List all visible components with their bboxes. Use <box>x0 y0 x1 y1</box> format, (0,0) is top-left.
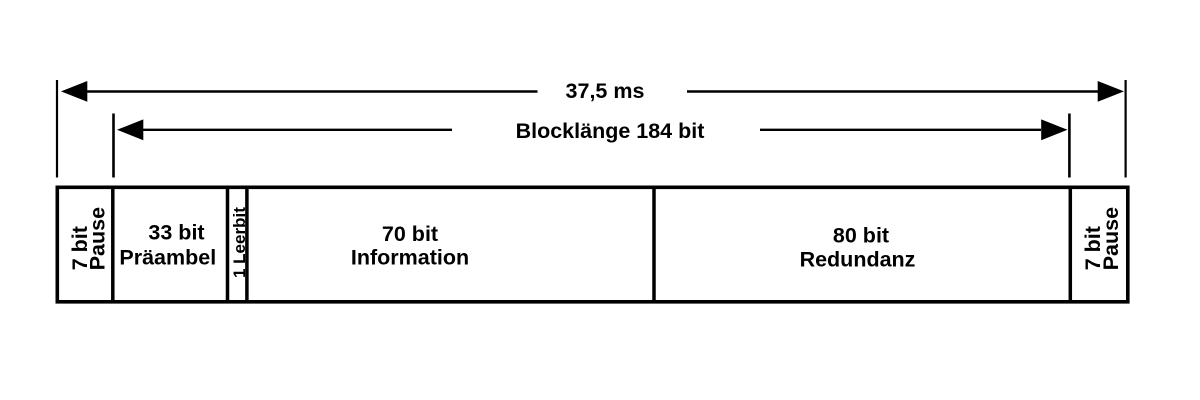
svg-text:80 bit: 80 bit <box>833 224 889 248</box>
svg-text:Pause: Pause <box>86 207 110 270</box>
svg-text:1 Leerbit: 1 Leerbit <box>230 207 249 278</box>
svg-text:Information: Information <box>351 246 469 270</box>
svg-text:Redundanz: Redundanz <box>800 247 916 271</box>
svg-text:Präambel: Präambel <box>119 245 216 269</box>
svg-text:33 bit: 33 bit <box>148 221 204 245</box>
svg-text:70 bit: 70 bit <box>382 222 438 246</box>
svg-text:Pause: Pause <box>1099 207 1123 270</box>
svg-text:Blocklänge 184 bit: Blocklänge 184 bit <box>516 119 705 143</box>
svg-text:37,5 ms: 37,5 ms <box>566 79 645 103</box>
